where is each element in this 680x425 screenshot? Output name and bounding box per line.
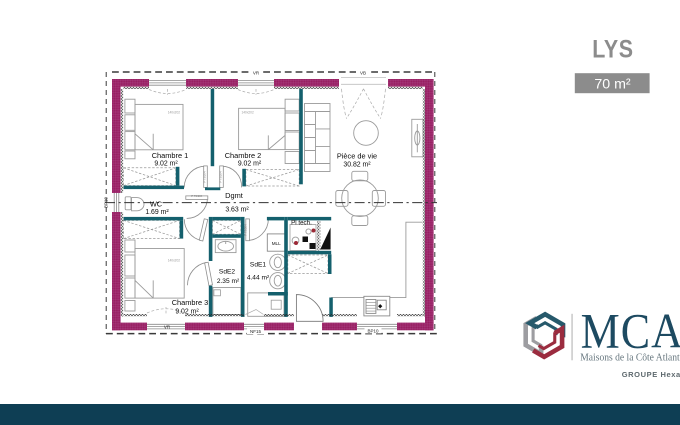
svg-text:VR: VR xyxy=(164,325,171,330)
svg-text:P 73/204: P 73/204 xyxy=(191,194,203,198)
svg-text:140x202: 140x202 xyxy=(168,259,180,263)
svg-text:MLL: MLL xyxy=(272,241,281,246)
svg-text:30.82 m²: 30.82 m² xyxy=(343,162,371,169)
svg-text:NF15: NF15 xyxy=(250,329,262,334)
svg-text:WC: WC xyxy=(150,200,163,209)
svg-text:1.69 m²: 1.69 m² xyxy=(145,209,169,216)
svg-text:GROUPE Hexaom: GROUPE Hexaom xyxy=(622,370,680,379)
svg-text:SdE1: SdE1 xyxy=(250,262,266,269)
svg-text:70 m²: 70 m² xyxy=(594,76,631,92)
svg-text:VR: VR xyxy=(253,71,260,76)
svg-text:2.35 m²: 2.35 m² xyxy=(217,278,240,285)
svg-text:3.63 m²: 3.63 m² xyxy=(225,207,249,214)
svg-text:Maisons de la Côte Atlantique: Maisons de la Côte Atlantique xyxy=(580,352,680,363)
svg-text:Chambre 2: Chambre 2 xyxy=(225,151,262,160)
svg-text:9.02 m²: 9.02 m² xyxy=(154,161,178,168)
svg-text:BP10: BP10 xyxy=(104,197,109,209)
svg-text:MCA: MCA xyxy=(581,304,680,359)
svg-text:Pl tech.: Pl tech. xyxy=(291,220,312,227)
svg-text:Chambre 1: Chambre 1 xyxy=(152,151,189,160)
svg-text:VB: VB xyxy=(360,71,366,76)
svg-text:P 73/204: P 73/204 xyxy=(244,224,248,236)
svg-text:Dgmt: Dgmt xyxy=(225,191,243,200)
svg-text:LYS: LYS xyxy=(592,35,633,63)
svg-text:P 73/204: P 73/204 xyxy=(219,171,223,183)
svg-text:Pièce de vie: Pièce de vie xyxy=(337,152,377,161)
svg-text:140x202: 140x202 xyxy=(242,111,254,115)
svg-text:Chambre 3: Chambre 3 xyxy=(172,298,209,307)
svg-text:140x202: 140x202 xyxy=(168,111,180,115)
svg-text:BP10: BP10 xyxy=(367,329,379,334)
svg-text:9.02 m²: 9.02 m² xyxy=(238,161,262,168)
svg-text:4.44 m²: 4.44 m² xyxy=(247,275,270,282)
svg-text:SdE2: SdE2 xyxy=(219,269,235,276)
svg-text:9.02 m²: 9.02 m² xyxy=(175,309,199,316)
svg-text:P 73/204: P 73/204 xyxy=(203,171,207,183)
